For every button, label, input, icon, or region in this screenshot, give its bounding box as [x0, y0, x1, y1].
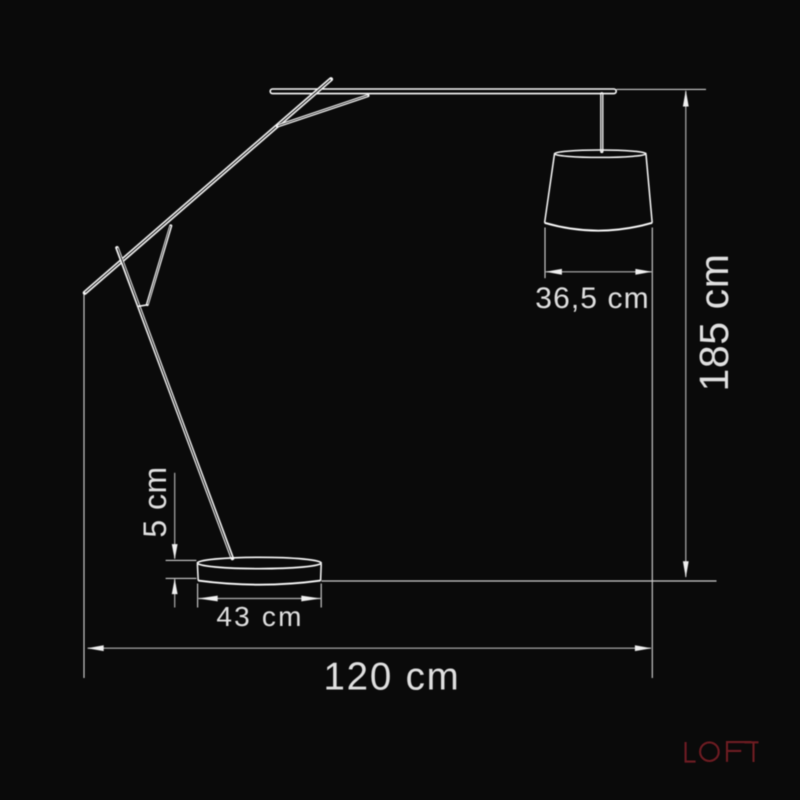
svg-text:185 cm: 185 cm [691, 253, 737, 391]
svg-text:5 cm: 5 cm [137, 466, 173, 537]
svg-text:36,5 cm: 36,5 cm [535, 282, 649, 315]
svg-text:120 cm: 120 cm [323, 655, 460, 698]
svg-text:43 cm: 43 cm [216, 601, 303, 632]
